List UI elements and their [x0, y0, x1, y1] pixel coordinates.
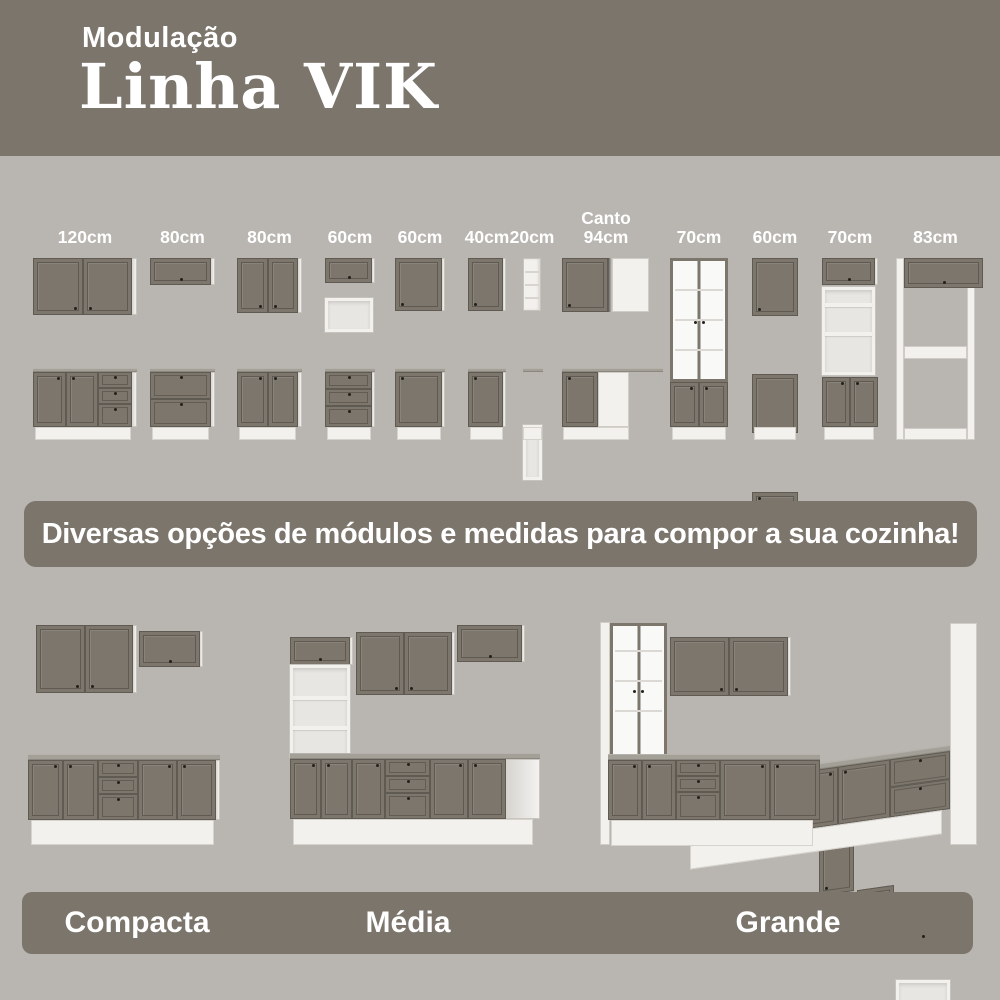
drawer — [325, 389, 372, 406]
cabinet-door — [608, 760, 642, 820]
wall-cabinet-flip — [150, 258, 215, 285]
drawer-knob — [114, 392, 117, 395]
door-knob — [312, 764, 315, 767]
shelf — [525, 271, 539, 273]
door-knob — [89, 307, 92, 310]
drawer-knob — [919, 787, 922, 790]
cabinet-side-panel — [200, 631, 203, 667]
plinth — [563, 427, 629, 440]
cabinet-side-panel — [522, 625, 525, 662]
base-run-front — [608, 754, 820, 846]
plinth — [470, 427, 503, 440]
flip-cabinet — [290, 637, 353, 665]
glass-display-doors — [670, 258, 728, 382]
module-size-label: 60cm — [379, 210, 461, 247]
shelf — [293, 696, 347, 700]
flip-door — [822, 258, 875, 285]
cabinet-door — [699, 382, 728, 427]
cabinet-door — [395, 258, 442, 311]
door-knob — [758, 497, 761, 500]
corner-base-cabinet — [562, 372, 650, 427]
drawer-stack — [98, 372, 132, 427]
door-knob — [183, 765, 186, 768]
cabinet-side-panel — [216, 760, 220, 820]
drawer — [98, 404, 132, 427]
drawer — [150, 399, 211, 427]
cabinet-door — [468, 759, 506, 819]
cabinet-door — [63, 760, 98, 820]
cabinet-door — [177, 760, 216, 820]
cabinet-side-panel — [875, 258, 878, 285]
tall-side-panel — [950, 623, 977, 845]
module-size-label: 80cm — [134, 210, 231, 247]
drawer — [385, 793, 430, 819]
base-cabinet — [150, 372, 215, 427]
door-knob — [474, 303, 477, 306]
glass-display-doors — [610, 623, 667, 757]
cabinet-door — [321, 759, 352, 819]
cabinet-door — [290, 759, 321, 819]
frame-shelf — [904, 346, 967, 359]
drawer-stack — [150, 372, 211, 427]
door-knob — [943, 281, 946, 284]
door-knob — [91, 685, 94, 688]
base-run — [28, 754, 220, 846]
plinth — [293, 819, 533, 845]
module-size-label: 80cm — [221, 210, 318, 247]
drawer-knob — [180, 376, 183, 379]
door-knob — [841, 382, 844, 385]
cabinet-door — [720, 760, 770, 820]
cabinet-door — [85, 625, 134, 693]
cabinet-door — [268, 372, 299, 427]
base-run — [290, 753, 540, 846]
drawer-stack — [676, 760, 720, 820]
door-knob — [401, 303, 404, 306]
wall-cabinet — [237, 258, 302, 313]
plinth — [327, 427, 371, 440]
module-size-label: 70cm — [654, 210, 744, 247]
door-knob — [568, 304, 571, 307]
drawer — [676, 776, 720, 792]
drawer-knob — [117, 764, 120, 767]
drawer-knob — [407, 797, 410, 800]
promo-banner: Diversas opções de módulos e medidas par… — [24, 501, 977, 567]
shelf — [675, 289, 723, 291]
base-cabinets — [608, 760, 820, 820]
cabinet-door — [36, 625, 85, 693]
drawer-knob — [697, 780, 700, 783]
shelf — [615, 680, 662, 682]
base-cabinets — [290, 759, 540, 819]
base-doors — [822, 377, 878, 427]
drawer-knob — [407, 763, 410, 766]
module-60cm-door: 60cm — [395, 210, 445, 440]
cabinet-door — [770, 760, 820, 820]
kitchen-label-grande: Grande — [710, 892, 866, 954]
flip-door — [150, 258, 211, 285]
module-60cm-niche: 60cm — [325, 210, 375, 440]
page-title: Linha VIK — [79, 50, 438, 123]
base-cabinets — [28, 760, 220, 820]
cabinet-side-panel — [788, 637, 791, 696]
cabinet-door — [430, 759, 468, 819]
shelf — [825, 303, 872, 307]
plinth — [523, 427, 542, 440]
door-knob — [259, 377, 262, 380]
door-knob — [825, 887, 828, 890]
door-knob — [568, 377, 571, 380]
door-knob — [761, 765, 764, 768]
cabinet-door — [33, 372, 66, 427]
door-knob — [410, 687, 413, 690]
flip-door — [325, 258, 372, 283]
plinth — [672, 427, 726, 440]
drawer-knob — [117, 798, 120, 801]
cabinet-door — [838, 759, 890, 824]
poster: Modulação Linha VIK 120cm 80cm — [0, 0, 1000, 1000]
drawer — [385, 776, 430, 793]
door-knob — [489, 655, 492, 658]
door-knob — [694, 321, 697, 324]
cabinet-door — [138, 760, 177, 820]
wall-cabinet — [468, 258, 506, 311]
door-knob — [169, 660, 172, 663]
drawer — [325, 372, 372, 389]
shelf — [825, 332, 872, 336]
cabinet-side-panel — [211, 258, 215, 285]
frame-rail — [896, 258, 904, 440]
cabinet-side-panel — [503, 258, 506, 311]
door-knob — [648, 765, 651, 768]
drawer — [98, 388, 132, 404]
cabinet-door — [28, 760, 63, 820]
drawer — [98, 794, 138, 820]
kitchen-size-band: Compacta Média Grande — [22, 892, 973, 954]
drawer-knob — [697, 796, 700, 799]
door-knob — [180, 278, 183, 281]
glass-door-divider — [637, 626, 640, 754]
base-cabinet — [395, 372, 445, 427]
cabinet-door — [729, 637, 788, 696]
wall-cabinet — [33, 258, 137, 315]
cabinet-door — [562, 372, 598, 427]
door-knob — [76, 685, 79, 688]
plinth — [754, 427, 796, 440]
door-knob — [633, 765, 636, 768]
cabinet-side-panel — [132, 372, 137, 427]
door-knob — [74, 307, 77, 310]
plinth — [239, 427, 296, 440]
door-knob — [922, 935, 925, 938]
cabinet-side-panel — [133, 625, 137, 693]
module-size-label: Canto 94cm — [546, 210, 666, 247]
drawer-stack — [325, 372, 372, 427]
pantry-door-upper — [752, 258, 798, 316]
module-83cm-fridge-surround: 83cm — [896, 210, 975, 440]
cabinet-door — [83, 258, 133, 315]
kitchen-label-compacta: Compacta — [59, 892, 215, 954]
shelf — [675, 349, 723, 351]
cabinet-door — [395, 372, 442, 427]
shelf — [615, 710, 662, 712]
drawer — [98, 760, 138, 777]
cabinet-side-panel — [452, 632, 455, 695]
door-knob — [776, 765, 779, 768]
base-cabinet — [237, 372, 302, 427]
drawer — [325, 406, 372, 427]
flip-cabinet — [139, 631, 203, 667]
door-knob — [274, 377, 277, 380]
cabinet-side-panel — [350, 637, 353, 665]
door-knob — [735, 688, 738, 691]
door-knob — [856, 382, 859, 385]
base-cabinet — [325, 372, 375, 427]
cabinet-door — [237, 372, 268, 427]
door-knob — [848, 278, 851, 281]
corner-white-door — [598, 372, 629, 427]
plinth — [611, 820, 813, 846]
cabinet-side-panel — [298, 258, 302, 313]
kitchen-label-media: Média — [330, 892, 486, 954]
module-size-label: 120cm — [17, 210, 153, 247]
drawer — [150, 372, 211, 399]
cabinet-side-panel — [506, 759, 540, 819]
door-knob — [168, 765, 171, 768]
tall-unit — [290, 637, 353, 757]
door-knob — [348, 276, 351, 279]
drawer-knob — [697, 764, 700, 767]
cabinet-side-panel — [211, 372, 215, 427]
cabinet-door — [352, 759, 385, 819]
plinth — [397, 427, 441, 440]
module-70cm-glass-tall: 70cm — [670, 210, 728, 440]
appliance-niche — [822, 287, 875, 375]
flip-door — [457, 625, 522, 662]
cabinet-door — [237, 258, 268, 313]
drawer-stack — [385, 759, 430, 819]
plinth — [152, 427, 209, 440]
door-knob — [54, 765, 57, 768]
door-knob — [829, 773, 832, 776]
module-60cm-pantry-tall: 60cm — [752, 210, 798, 440]
flip-cabinet — [457, 625, 525, 662]
cabinet-door — [356, 632, 404, 695]
drawer-knob — [348, 393, 351, 396]
door-knob — [57, 377, 60, 380]
module-70cm-oven-tower: 70cm — [822, 210, 878, 440]
door-knob — [327, 764, 330, 767]
plinth — [35, 427, 131, 440]
cabinet-door — [66, 372, 99, 427]
door-knob — [319, 658, 322, 661]
drawer — [676, 760, 720, 776]
drawer-knob — [117, 781, 120, 784]
open-niche — [325, 298, 373, 332]
door-knob — [641, 690, 644, 693]
base-cabinet — [33, 372, 137, 427]
cabinet-door — [670, 382, 699, 427]
module-80cm-drawers: 80cm — [150, 210, 215, 440]
door-knob — [844, 770, 847, 773]
door-knob — [758, 308, 761, 311]
door-knob — [720, 688, 723, 691]
cabinet-door — [468, 372, 503, 427]
drawer-stack — [890, 751, 950, 817]
drawer-stack — [98, 760, 138, 820]
cabinet-side-panel — [442, 258, 445, 311]
door-knob — [72, 377, 75, 380]
wall-cabinet — [36, 625, 137, 693]
cabinet-door — [670, 637, 729, 696]
frame-bottom — [904, 428, 967, 440]
open-shelf-tower — [523, 258, 541, 311]
wall-cabinet — [670, 637, 791, 696]
drawer — [676, 792, 720, 820]
door-knob — [401, 377, 404, 380]
cabinet-side-panel — [372, 258, 375, 283]
shelf — [293, 726, 347, 730]
door-knob — [274, 305, 277, 308]
corner-blind-panel — [612, 258, 649, 312]
door-knob — [459, 764, 462, 767]
cabinet-side-panel — [442, 372, 445, 427]
cabinet-side-panel — [503, 372, 506, 427]
drawer-knob — [114, 376, 117, 379]
door-knob — [474, 377, 477, 380]
door-knob — [633, 690, 636, 693]
flip-door — [904, 258, 983, 288]
cabinet-door — [822, 377, 850, 427]
module-size-label: 83cm — [880, 210, 991, 247]
shelf — [525, 284, 539, 286]
wall-cabinet — [395, 258, 445, 311]
corner-wall-cabinet — [562, 258, 650, 312]
drawer-knob — [348, 376, 351, 379]
cabinet-door — [268, 258, 299, 313]
fridge-frame — [896, 258, 975, 440]
base-doors — [670, 382, 728, 427]
open-tower — [896, 980, 950, 1000]
flip-cabinet — [822, 258, 878, 285]
cabinet-door — [642, 760, 676, 820]
drawer-knob — [180, 403, 183, 406]
door-knob — [376, 764, 379, 767]
plinth — [824, 427, 874, 440]
cabinet-side-panel — [298, 372, 302, 427]
wall-cabinet — [356, 632, 455, 695]
drawer-knob — [407, 780, 410, 783]
drawer-knob — [114, 408, 117, 411]
shelf — [675, 319, 723, 321]
cabinet-side-panel — [132, 258, 137, 315]
door-knob — [259, 305, 262, 308]
module-corner-94cm: Canto 94cm — [562, 210, 650, 440]
module-20cm: 20cm — [523, 210, 541, 440]
cabinet-door — [850, 377, 878, 427]
header-band: Modulação Linha VIK — [0, 0, 1000, 156]
module-80cm-doors: 80cm — [237, 210, 302, 440]
drawer — [98, 372, 132, 388]
drawer-knob — [348, 410, 351, 413]
base-cabinet — [468, 372, 506, 427]
pantry-door-middle — [752, 374, 798, 433]
shelf — [615, 650, 662, 652]
wall-cabinet-flip — [325, 258, 375, 283]
door-knob — [395, 687, 398, 690]
module-120cm: 120cm — [33, 210, 137, 440]
drawer-knob — [919, 759, 922, 762]
door-knob — [690, 387, 693, 390]
cabinet-door — [562, 258, 608, 312]
flip-door — [139, 631, 200, 667]
door-knob — [474, 764, 477, 767]
door-knob — [705, 387, 708, 390]
module-40cm: 40cm — [468, 210, 506, 440]
drawer — [385, 759, 430, 776]
countertop — [523, 368, 543, 372]
shelf — [525, 297, 539, 299]
drawer — [98, 777, 138, 794]
flip-door — [290, 637, 350, 665]
cabinet-side-panel — [372, 372, 375, 427]
door-knob — [69, 765, 72, 768]
cabinet-door — [33, 258, 83, 315]
open-shelves — [290, 665, 350, 757]
module-size-label: 60cm — [736, 210, 814, 247]
plinth — [31, 820, 214, 845]
cabinet-door — [404, 632, 452, 695]
door-knob — [702, 321, 705, 324]
cabinet-door — [468, 258, 503, 311]
